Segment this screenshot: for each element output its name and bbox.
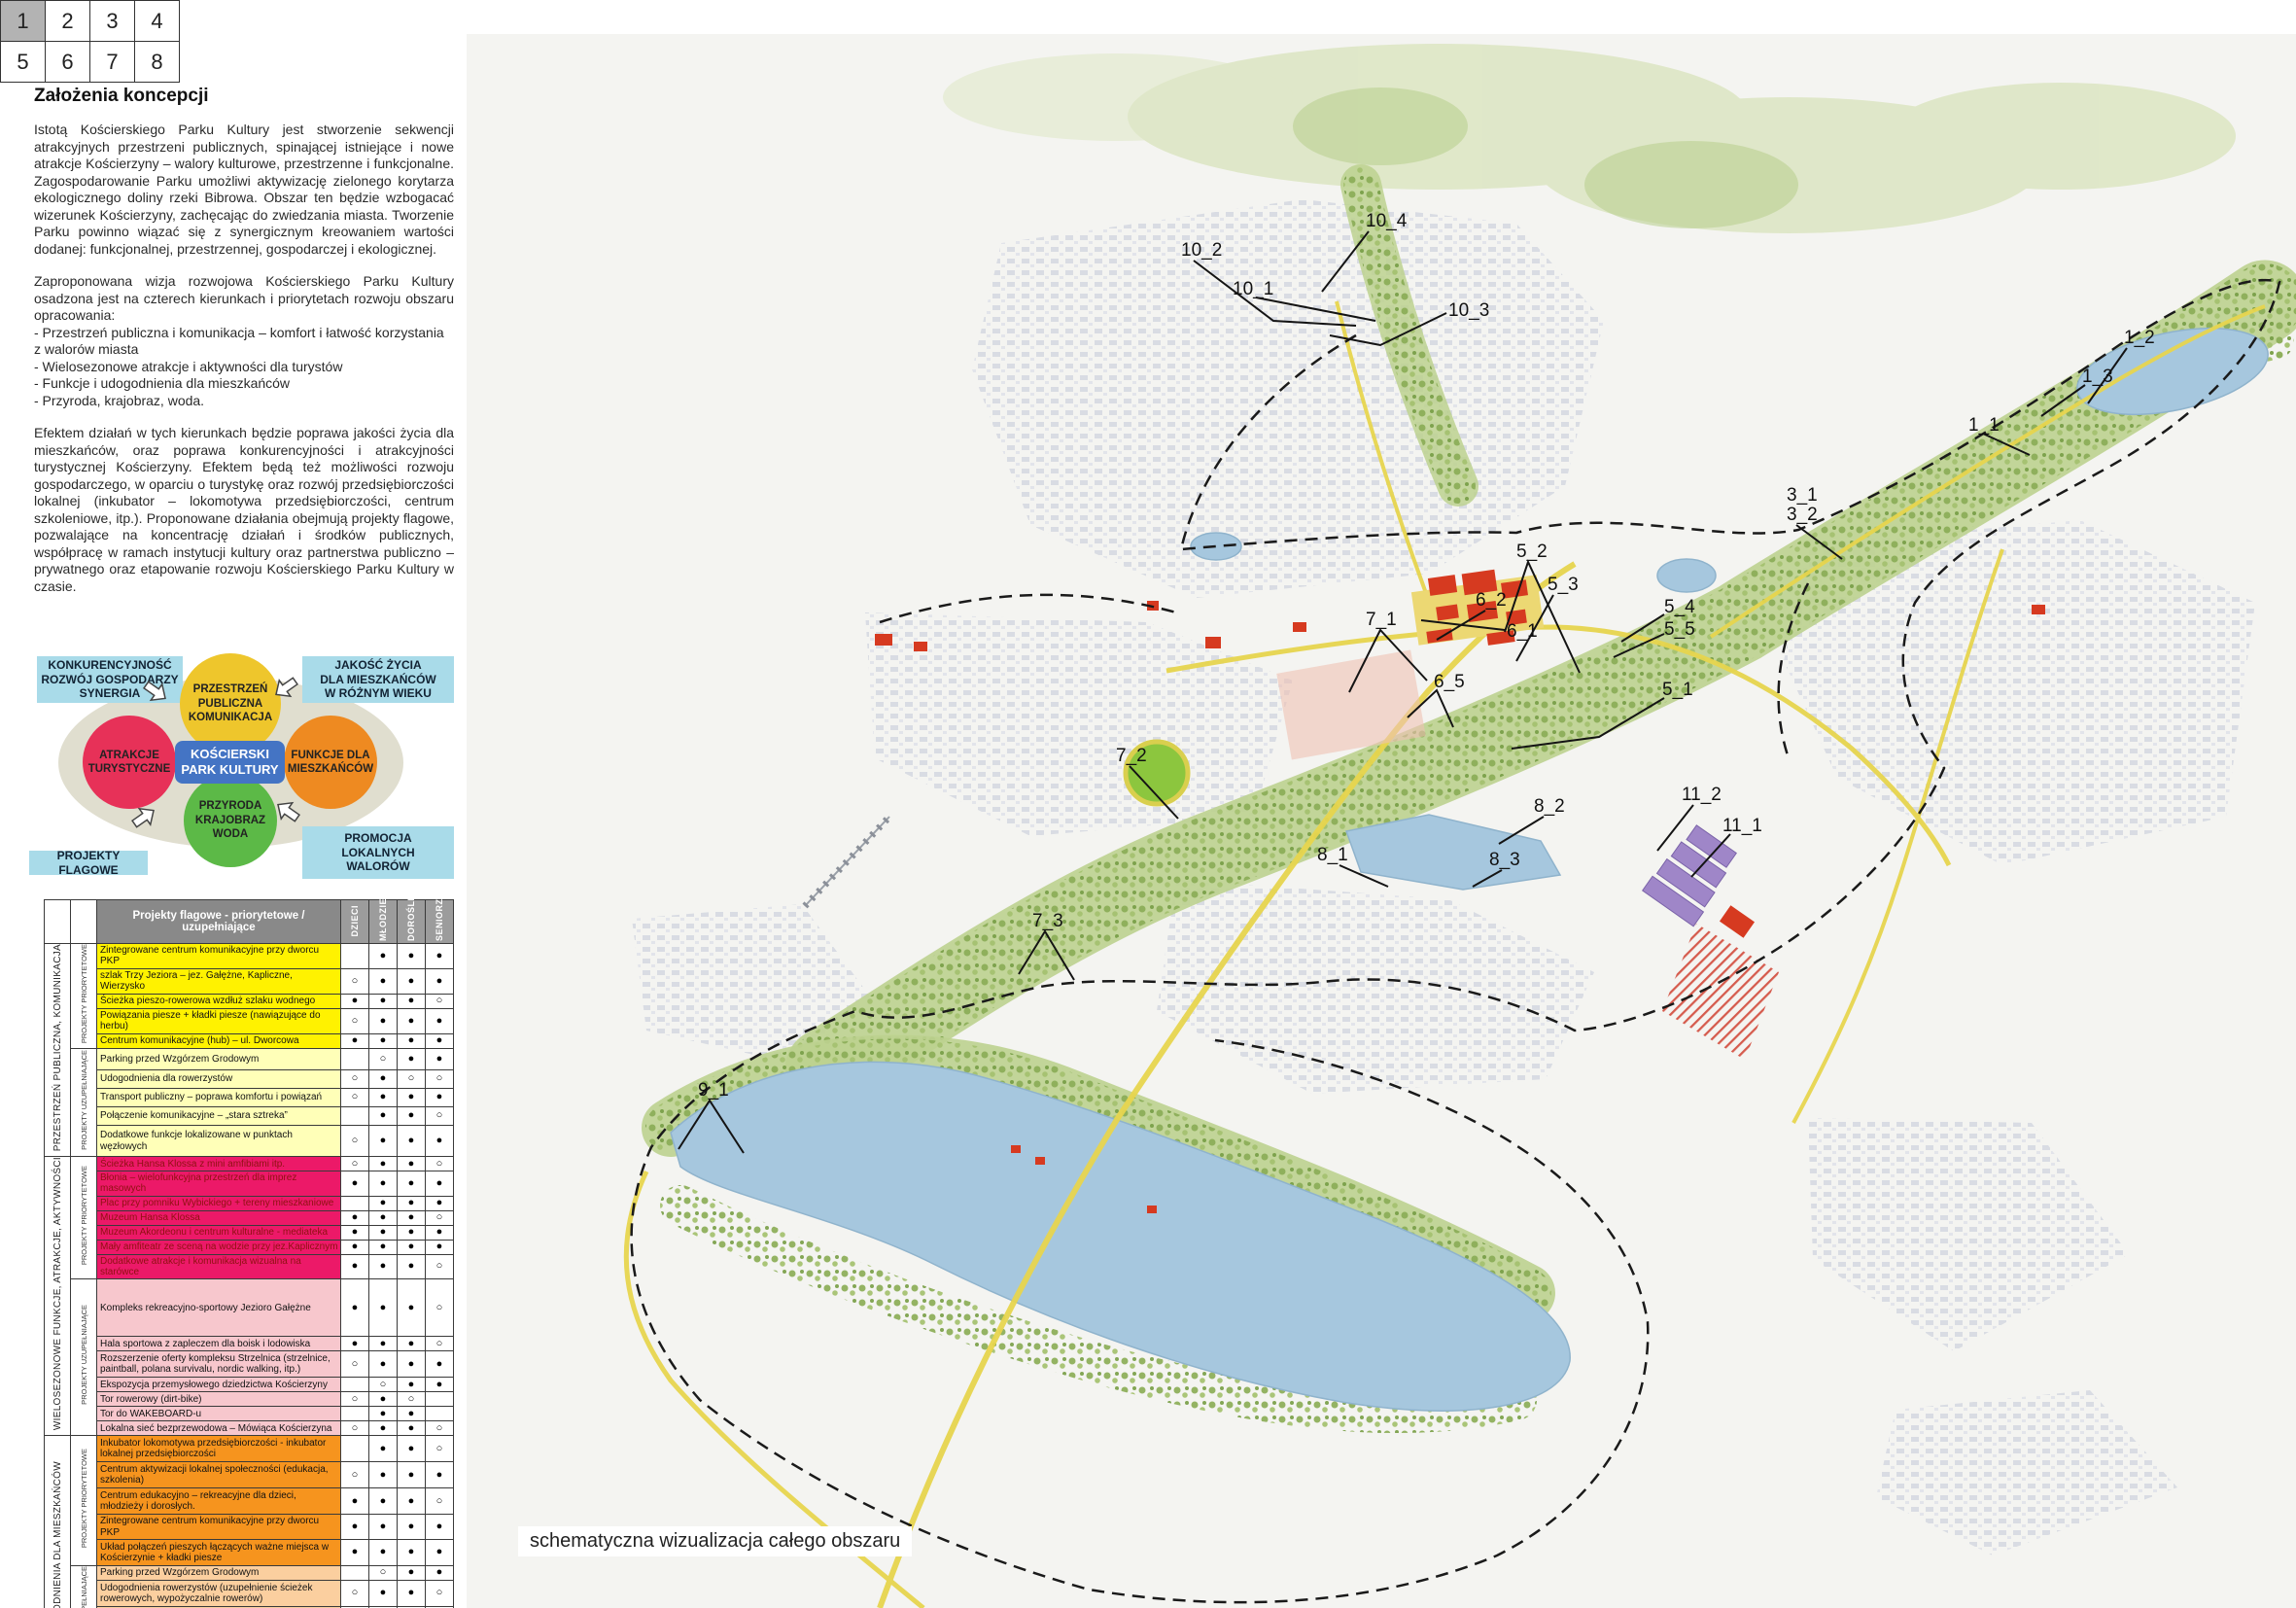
map-label: 1_1: [1968, 415, 2000, 436]
map-label: 7_2: [1116, 746, 1147, 766]
map-label: 1_2: [2124, 328, 2155, 348]
map-label: 10_3: [1448, 300, 1489, 321]
map-label: 9_1: [698, 1080, 729, 1101]
map-label: 3_2: [1787, 505, 1818, 525]
map-label: 11_2: [1682, 785, 1722, 805]
map-label: 7_3: [1032, 911, 1063, 931]
map-label: 1_3: [2082, 367, 2113, 387]
map-label: 6_5: [1434, 672, 1465, 692]
map-label: 7_1: [1366, 610, 1397, 630]
map-label: 3_1: [1787, 485, 1818, 506]
map-label: 6_2: [1476, 590, 1507, 611]
map-label: 10_4: [1366, 211, 1408, 231]
map-label: 8_2: [1534, 796, 1565, 817]
map-label: 8_1: [1317, 845, 1348, 865]
map-label: 5_1: [1662, 680, 1693, 700]
map-label: 10_2: [1181, 240, 1222, 261]
area-visualization-map: 10_210_110_410_31_21_31_13_13_25_25_36_2…: [0, 0, 2296, 1608]
map-label: 8_3: [1489, 850, 1520, 870]
presentation-board: 1 2 3 4 5 6 7 8 Założenia koncepcji Isto…: [0, 0, 2296, 1608]
map-label: 11_1: [1722, 816, 1762, 836]
map-label: 5_4: [1664, 597, 1695, 617]
map-caption: schematyczna wizualizacja całego obszaru: [518, 1526, 912, 1556]
map-label: 5_5: [1664, 619, 1695, 640]
map-label: 6_1: [1507, 621, 1538, 642]
map-label: 5_2: [1516, 542, 1548, 562]
map-label: 10_1: [1233, 279, 1273, 299]
map-label: 5_3: [1548, 575, 1579, 595]
